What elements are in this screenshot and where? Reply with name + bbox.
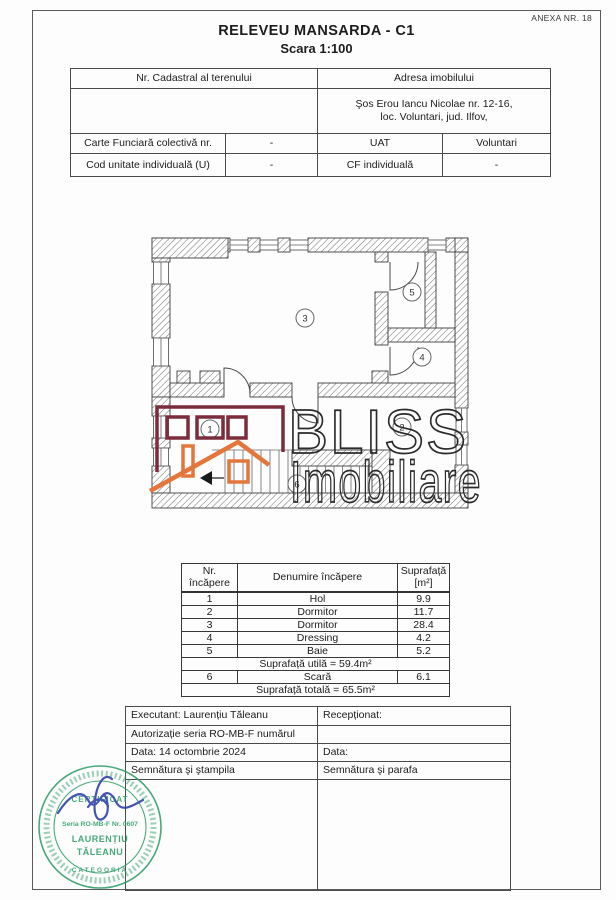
total-area-row: Suprafață totală = 65.5m² bbox=[182, 683, 450, 696]
table-row: 3 Dormitor 28.4 bbox=[182, 618, 450, 631]
carte-funciara-label: Carte Funciară colectivă nr. bbox=[71, 134, 226, 154]
cf-individuala-value: - bbox=[443, 154, 551, 177]
cod-unitate-label: Cod unitate individuală (U) bbox=[71, 154, 226, 177]
page-title: RELEVEU MANSARDA - C1 bbox=[32, 23, 601, 39]
cadastral-header-right: Adresa imobilului bbox=[318, 69, 551, 89]
uat-label: UAT bbox=[318, 134, 443, 154]
cadastral-header-left: Nr. Cadastral al terenului bbox=[71, 69, 318, 89]
area-header-nr: Nr. încăpere bbox=[182, 564, 238, 592]
annex-number: ANEXA NR. 18 bbox=[400, 13, 592, 23]
address-line-1: Şos Erou Iancu Nicolae nr. 12-16, bbox=[318, 98, 550, 111]
semnatura-right-cell: Semnătura şi parafa bbox=[318, 762, 511, 780]
cod-unitate-value: - bbox=[226, 154, 318, 177]
table-row: 1 Hol 9.9 bbox=[182, 592, 450, 606]
receptionat-cell: Recepționat: bbox=[318, 707, 511, 726]
cadastral-number-cell bbox=[71, 89, 318, 134]
room-area-table: Nr. încăpere Denumire încăpere Suprafață… bbox=[181, 563, 450, 697]
executant-table: Executant: Laurențiu Tăleanu Recepționat… bbox=[125, 706, 511, 891]
autorizatie-empty-cell bbox=[318, 726, 511, 744]
data-right-cell: Data: bbox=[318, 744, 511, 762]
table-row: 2 Dormitor 11.7 bbox=[182, 605, 450, 618]
cadastral-table: Nr. Cadastral al terenului Adresa imobil… bbox=[70, 68, 551, 177]
address-cell: Şos Erou Iancu Nicolae nr. 12-16, loc. V… bbox=[318, 89, 551, 134]
area-header-surface: Suprafață [m²] bbox=[398, 564, 450, 592]
useful-area-row: Suprafață utilă = 59.4m² bbox=[182, 657, 450, 670]
table-row: 5 Baie 5.2 bbox=[182, 644, 450, 657]
autorizatie-cell: Autorizație seria RO-MB-F numărul bbox=[126, 726, 318, 744]
scale-label: Scara 1:100 bbox=[32, 41, 601, 56]
signature-area-right bbox=[318, 780, 511, 891]
address-line-2: loc. Voluntari, jud. Ilfov, bbox=[318, 111, 550, 124]
carte-funciara-value: - bbox=[226, 134, 318, 154]
table-row: 4 Dressing 4.2 bbox=[182, 631, 450, 644]
uat-value: Voluntari bbox=[443, 134, 551, 154]
executant-cell: Executant: Laurențiu Tăleanu bbox=[126, 707, 318, 726]
cf-individuala-label: CF individuală bbox=[318, 154, 443, 177]
data-left-cell: Data: 14 octombrie 2024 bbox=[126, 744, 318, 762]
semnatura-left-cell: Semnătura şi ştampila bbox=[126, 762, 318, 780]
area-header-name: Denumire încăpere bbox=[238, 564, 398, 592]
stair-row: 6 Scară 6.1 bbox=[182, 670, 450, 683]
signature-area-left bbox=[126, 780, 318, 891]
